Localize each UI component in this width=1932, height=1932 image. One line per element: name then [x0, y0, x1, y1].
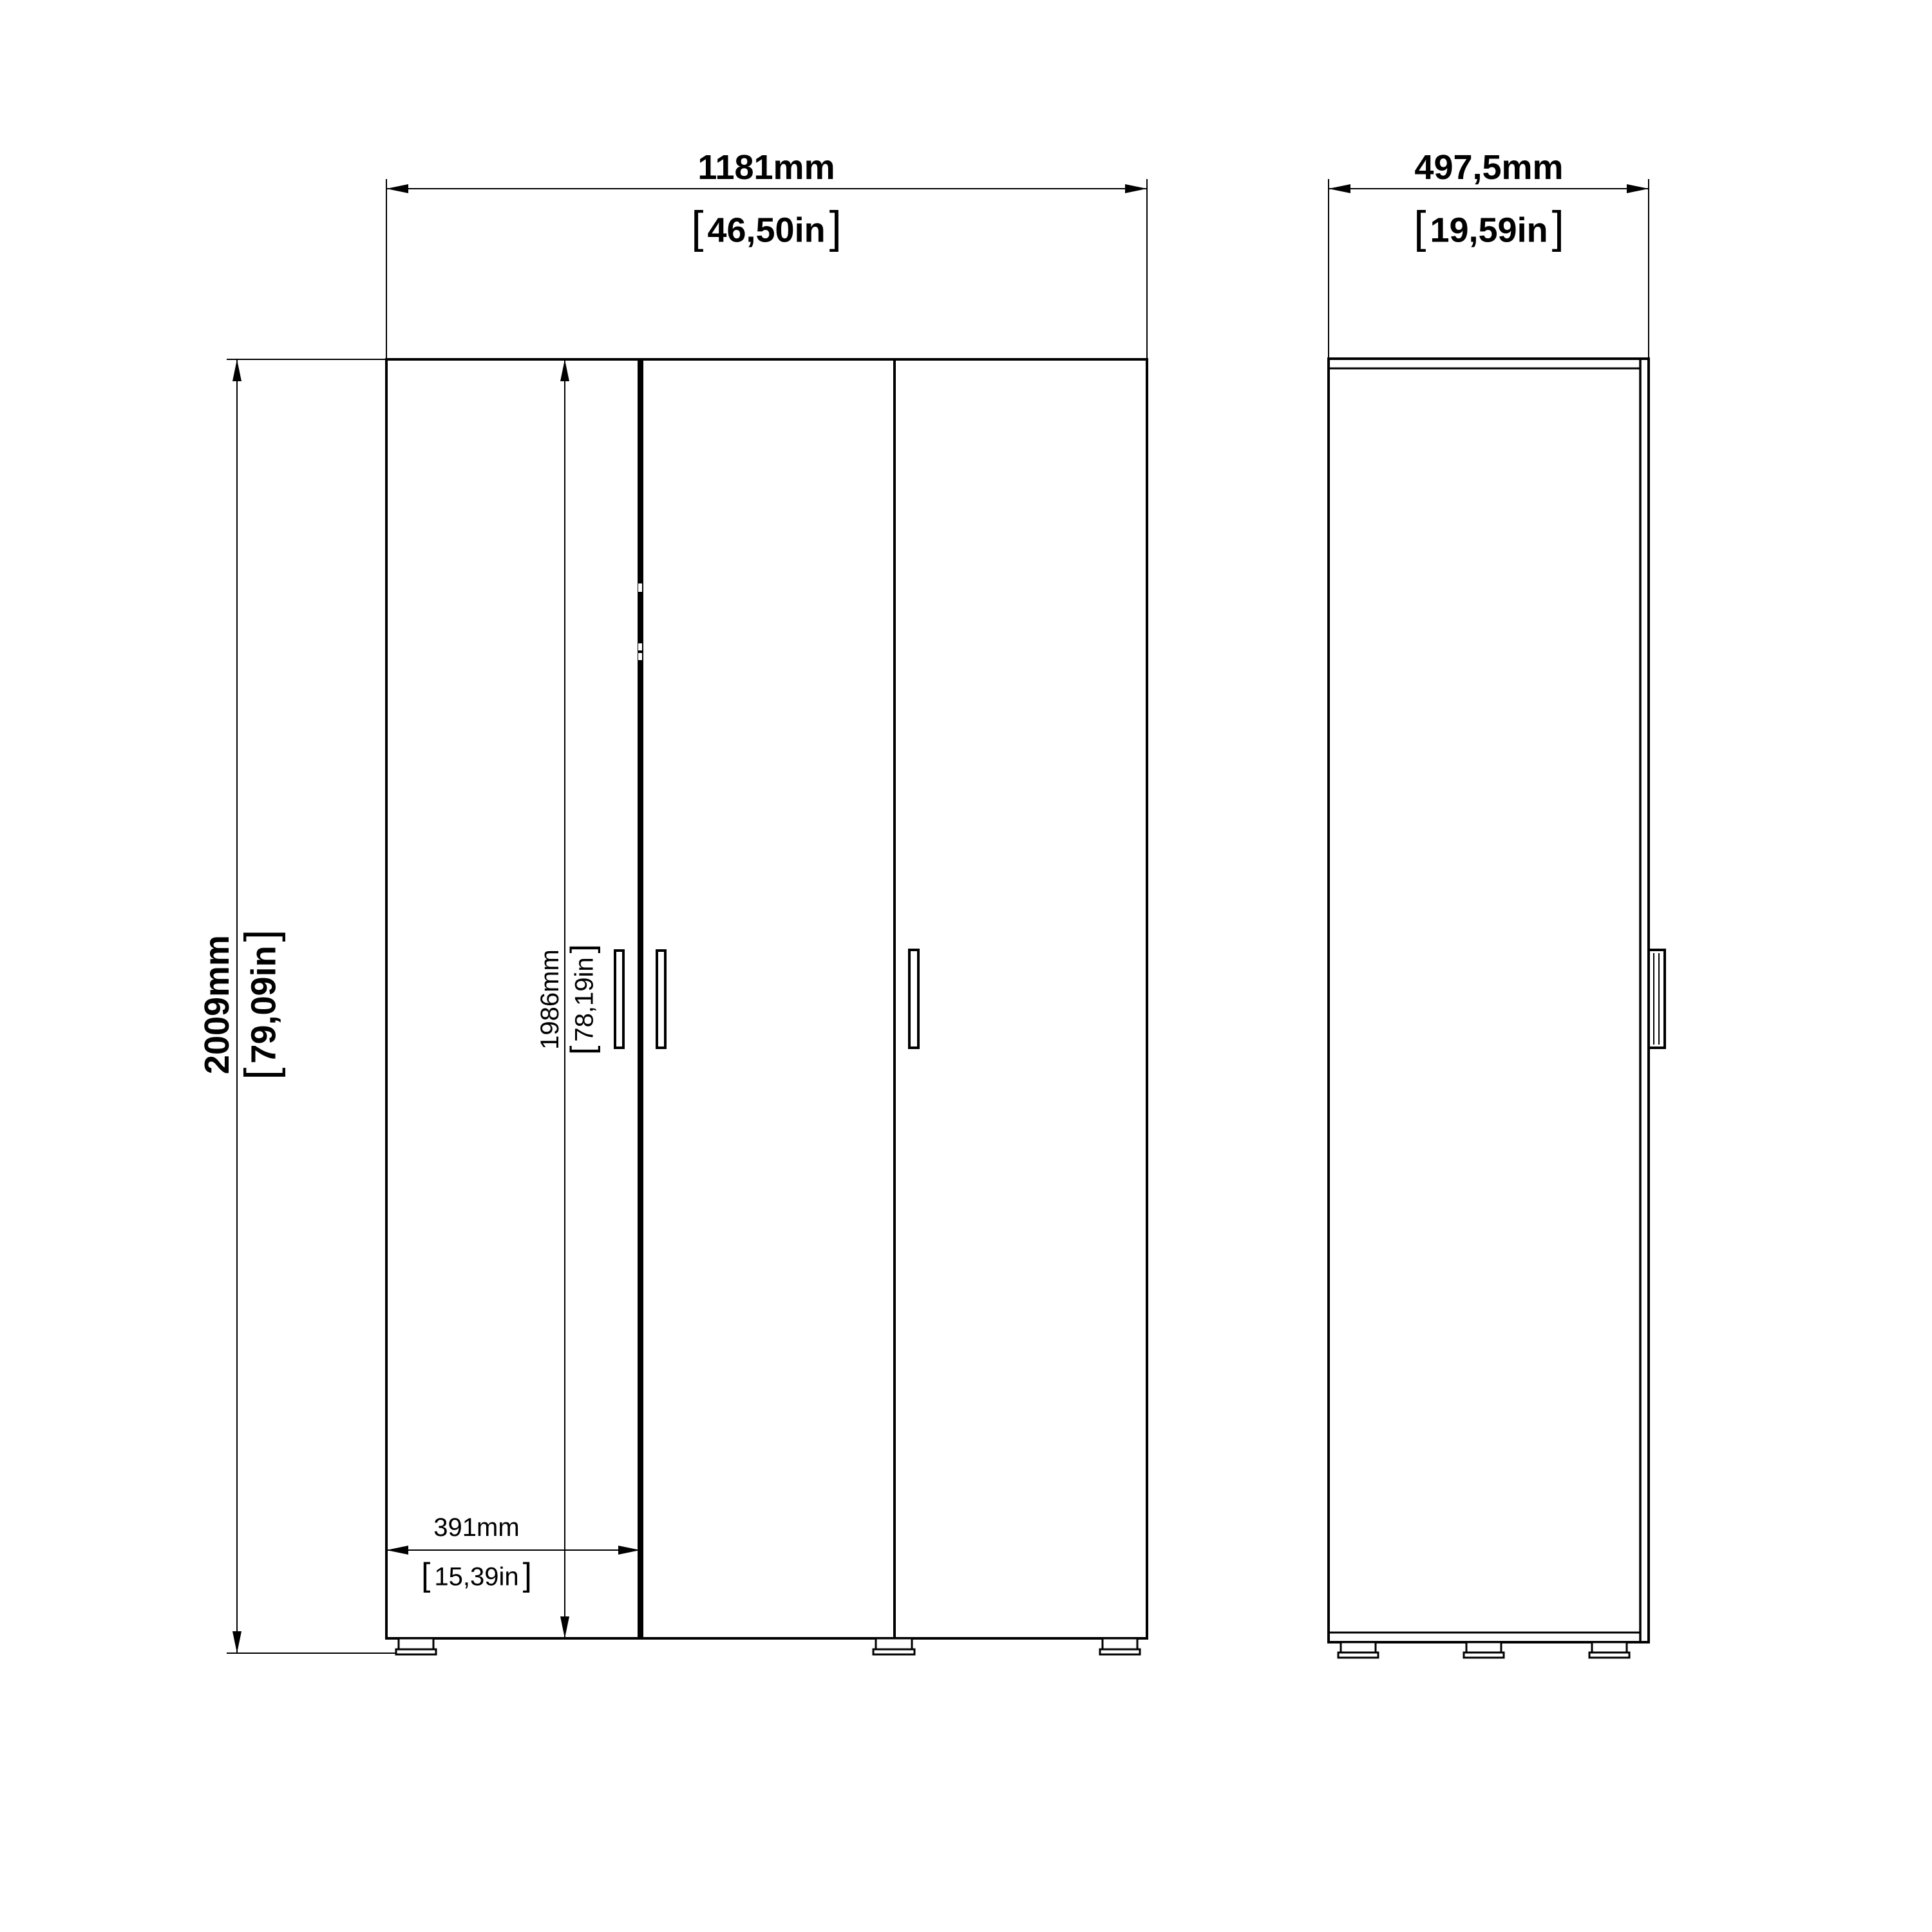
dim-overall-height-arrow-top — [232, 359, 241, 381]
bracket-close: ] — [563, 940, 600, 957]
bracket-open: [ — [687, 202, 707, 252]
bracket-open: [ — [563, 1042, 600, 1059]
dim-depth-mm-label: 497,5mm — [1414, 150, 1563, 185]
side-foot-back-base — [1338, 1653, 1378, 1658]
side-handle — [1649, 950, 1665, 1048]
dim-door-width-in-label: [15,39in] — [417, 1557, 536, 1590]
side-foot-middle — [1466, 1642, 1501, 1653]
dim-overall-width-arrow-right — [1125, 184, 1147, 193]
front-foot-middle — [876, 1638, 912, 1650]
dim-overall-width-in-value: 46,50in — [707, 211, 825, 249]
side-foot-front — [1592, 1642, 1627, 1653]
dim-door-width-arrow-left — [386, 1546, 408, 1555]
side-cabinet-outline — [1329, 359, 1649, 1642]
bracket-close: ] — [236, 925, 286, 945]
dim-door-width-arrow-right — [618, 1546, 640, 1555]
bracket-open: [ — [236, 1064, 286, 1084]
front-view — [386, 359, 1147, 1654]
dim-depth-in-value: 19,59in — [1430, 211, 1548, 249]
front-foot-left — [399, 1638, 433, 1650]
dim-door-height-in-value: 78,19in — [570, 957, 598, 1041]
dim-depth-in-label: [19,59in] — [1410, 204, 1568, 249]
dim-door-width-mm-label: 391mm — [433, 1515, 519, 1540]
dim-overall-height-in-value: 79,09in — [244, 945, 283, 1063]
front-handle-left-door — [615, 951, 623, 1048]
bracket-open: [ — [417, 1556, 434, 1593]
dim-door-height-in-label: [78,19in] — [565, 940, 598, 1059]
dim-door-height-arrow-bottom — [560, 1616, 569, 1638]
side-foot-front-base — [1589, 1653, 1629, 1658]
front-handle-middle-door — [657, 951, 665, 1048]
dimension-lines — [227, 179, 1649, 1653]
dim-overall-height-in-label: [79,09in] — [238, 925, 282, 1084]
wardrobe-dimension-drawing — [0, 0, 1932, 1932]
drawing-canvas: 1181mm [46,50in] 497,5mm [19,59in] 2009m… — [0, 0, 1932, 1932]
dim-overall-height-arrow-bottom — [232, 1631, 241, 1653]
front-feet — [396, 1638, 1140, 1654]
front-foot-right — [1103, 1638, 1137, 1650]
front-foot-middle-base — [873, 1649, 914, 1654]
front-cabinet-outline — [386, 359, 1147, 1638]
dim-door-width — [386, 1546, 640, 1555]
dim-overall-width-arrow-left — [386, 184, 408, 193]
dim-overall-height-mm-label: 2009mm — [200, 935, 234, 1074]
bracket-open: [ — [1410, 202, 1430, 252]
dim-depth-arrow-right — [1627, 184, 1649, 193]
front-handle-right-door — [909, 950, 918, 1048]
dim-overall-width-in-label: [46,50in] — [687, 204, 846, 249]
bracket-close: ] — [519, 1556, 536, 1593]
dim-door-width-in-value: 15,39in — [434, 1562, 518, 1591]
front-foot-right-base — [1100, 1649, 1140, 1654]
dim-overall-width-mm-label: 1181mm — [697, 150, 835, 185]
dim-depth-arrow-left — [1329, 184, 1350, 193]
bracket-close: ] — [1548, 202, 1568, 252]
dim-door-height-arrow-top — [560, 359, 569, 381]
side-view — [1329, 359, 1665, 1658]
side-feet — [1338, 1642, 1629, 1658]
front-foot-left-base — [396, 1649, 436, 1654]
side-foot-back — [1341, 1642, 1376, 1653]
dim-door-height-mm-label: 1986mm — [537, 949, 563, 1050]
bracket-close: ] — [826, 202, 846, 252]
side-foot-middle-base — [1464, 1653, 1504, 1658]
